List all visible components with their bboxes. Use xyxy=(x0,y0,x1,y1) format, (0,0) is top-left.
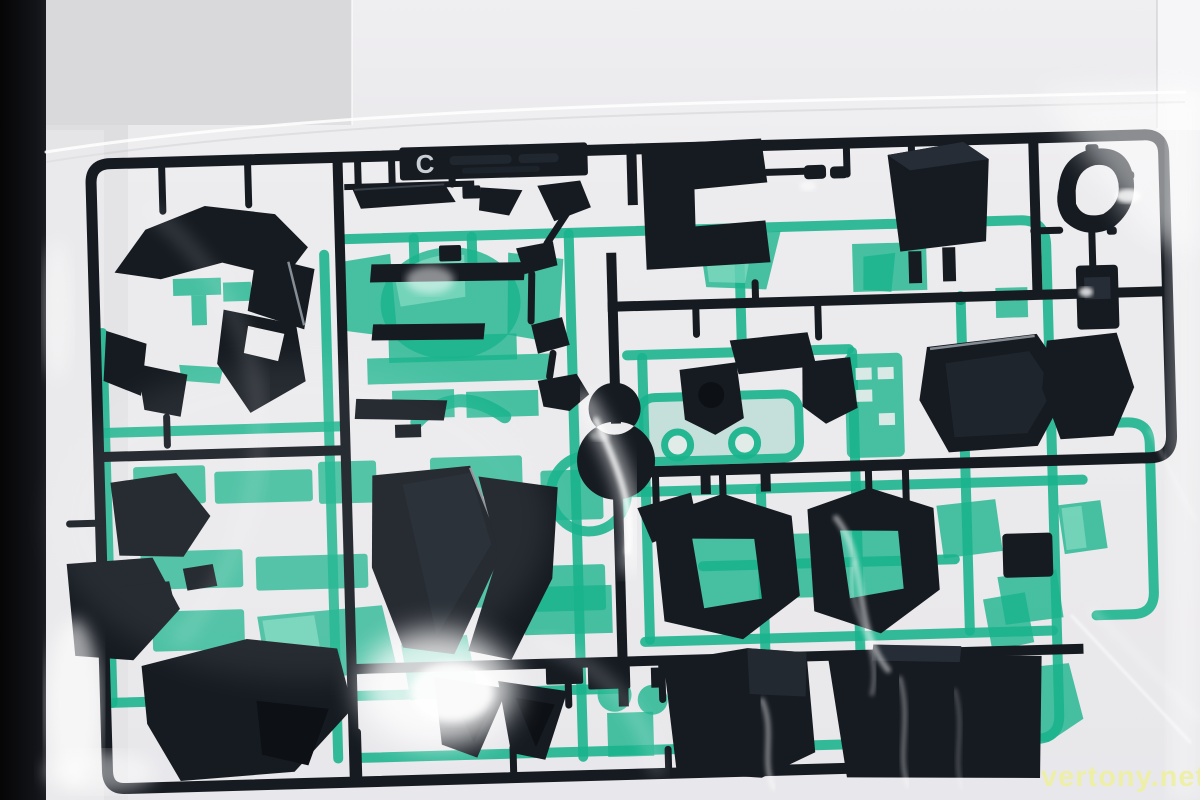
runner-letter-tag: C xyxy=(399,142,588,180)
photo-model-kit-runner: C xyxy=(0,0,1200,800)
table-edge-black-band xyxy=(0,0,46,800)
runner-letter: C xyxy=(415,149,435,180)
watermark: vertony.net xyxy=(1041,761,1200,793)
backdrop-shadow-left xyxy=(46,0,352,125)
photo-canvas: C xyxy=(0,0,1200,800)
